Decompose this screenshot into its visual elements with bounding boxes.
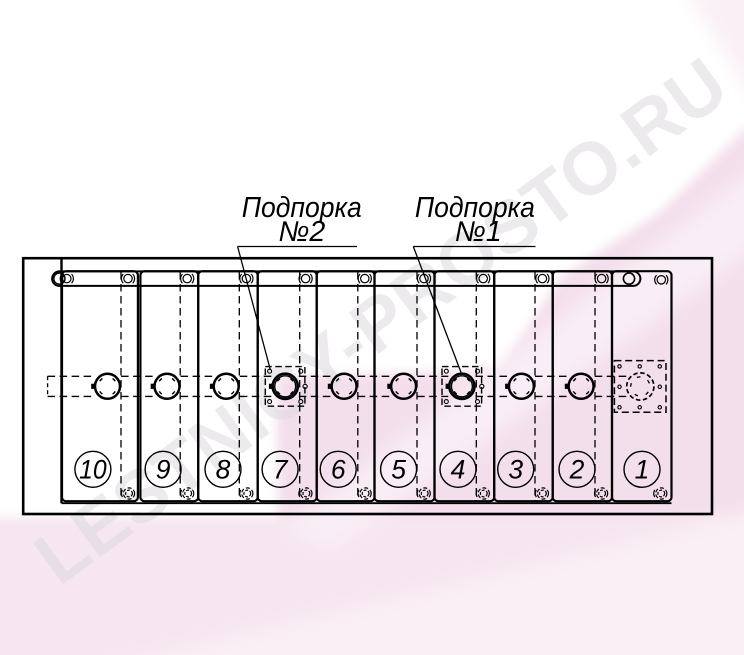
- svg-text:2: 2: [569, 455, 585, 485]
- svg-text:5: 5: [391, 455, 406, 485]
- svg-text:4: 4: [451, 455, 466, 485]
- svg-text:8: 8: [216, 455, 231, 485]
- svg-text:1: 1: [635, 455, 650, 485]
- svg-text:№1: №1: [455, 216, 502, 248]
- svg-text:6: 6: [331, 455, 346, 485]
- svg-text:9: 9: [156, 455, 171, 485]
- svg-text:7: 7: [273, 455, 289, 485]
- svg-text:№2: №2: [278, 216, 325, 248]
- svg-text:10: 10: [79, 455, 107, 485]
- svg-text:3: 3: [508, 455, 523, 485]
